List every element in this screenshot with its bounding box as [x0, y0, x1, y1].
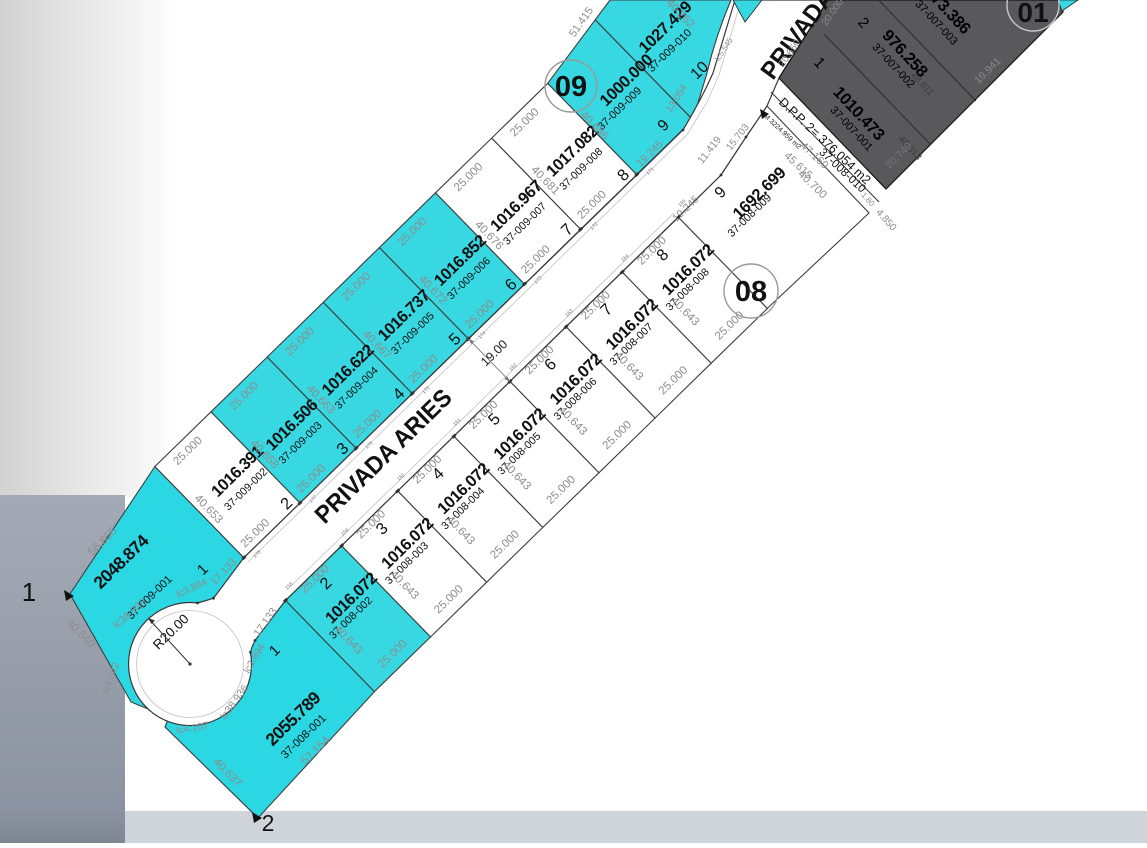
svg-text:2: 2 [262, 810, 275, 836]
svg-text:01: 01 [1017, 0, 1048, 28]
svg-text:09: 09 [555, 71, 587, 103]
svg-text:1: 1 [22, 577, 36, 607]
svg-text:08: 08 [735, 276, 767, 308]
